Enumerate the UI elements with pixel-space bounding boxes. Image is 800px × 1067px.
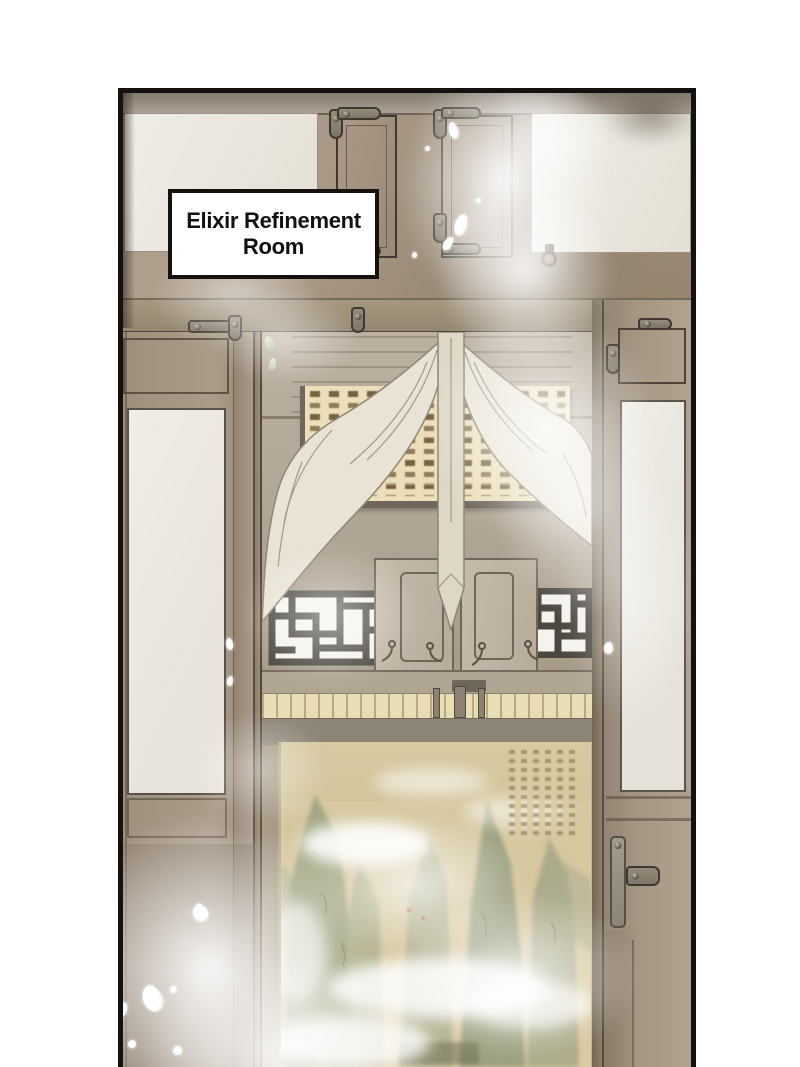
slat-screen bbox=[262, 694, 592, 719]
door-rail-line bbox=[606, 818, 691, 821]
mist-cloud bbox=[240, 540, 420, 690]
petal bbox=[170, 986, 177, 993]
petal bbox=[476, 198, 481, 203]
sign-text-line-2: Room bbox=[172, 234, 375, 260]
corner-shadow bbox=[123, 93, 135, 328]
corner-bracket-icon bbox=[337, 107, 381, 120]
hinge-bracket-icon bbox=[626, 866, 660, 886]
petal bbox=[412, 252, 417, 258]
rail-post bbox=[478, 688, 485, 718]
corner-bracket-icon bbox=[638, 318, 672, 330]
sign-text-line-1: Elixir Refinement bbox=[172, 208, 375, 234]
mist-cloud bbox=[390, 890, 640, 1060]
comic-panel: Elixir Refinement Room bbox=[123, 93, 691, 1067]
petal bbox=[173, 1046, 182, 1055]
petal bbox=[128, 1040, 136, 1048]
painting-inscription bbox=[509, 750, 575, 838]
petal bbox=[425, 146, 430, 151]
mist-cloud bbox=[560, 460, 691, 730]
rivet bbox=[611, 838, 625, 862]
rail-post bbox=[433, 688, 440, 718]
comic-page: Elixir Refinement Room bbox=[0, 0, 800, 1067]
petal bbox=[604, 642, 613, 654]
mist-cloud bbox=[210, 290, 360, 385]
sign-board: Elixir Refinement Room bbox=[168, 189, 379, 279]
rail-post bbox=[454, 686, 466, 718]
comic-panel-border: Elixir Refinement Room bbox=[118, 88, 696, 1067]
door-rail-line bbox=[606, 796, 691, 799]
